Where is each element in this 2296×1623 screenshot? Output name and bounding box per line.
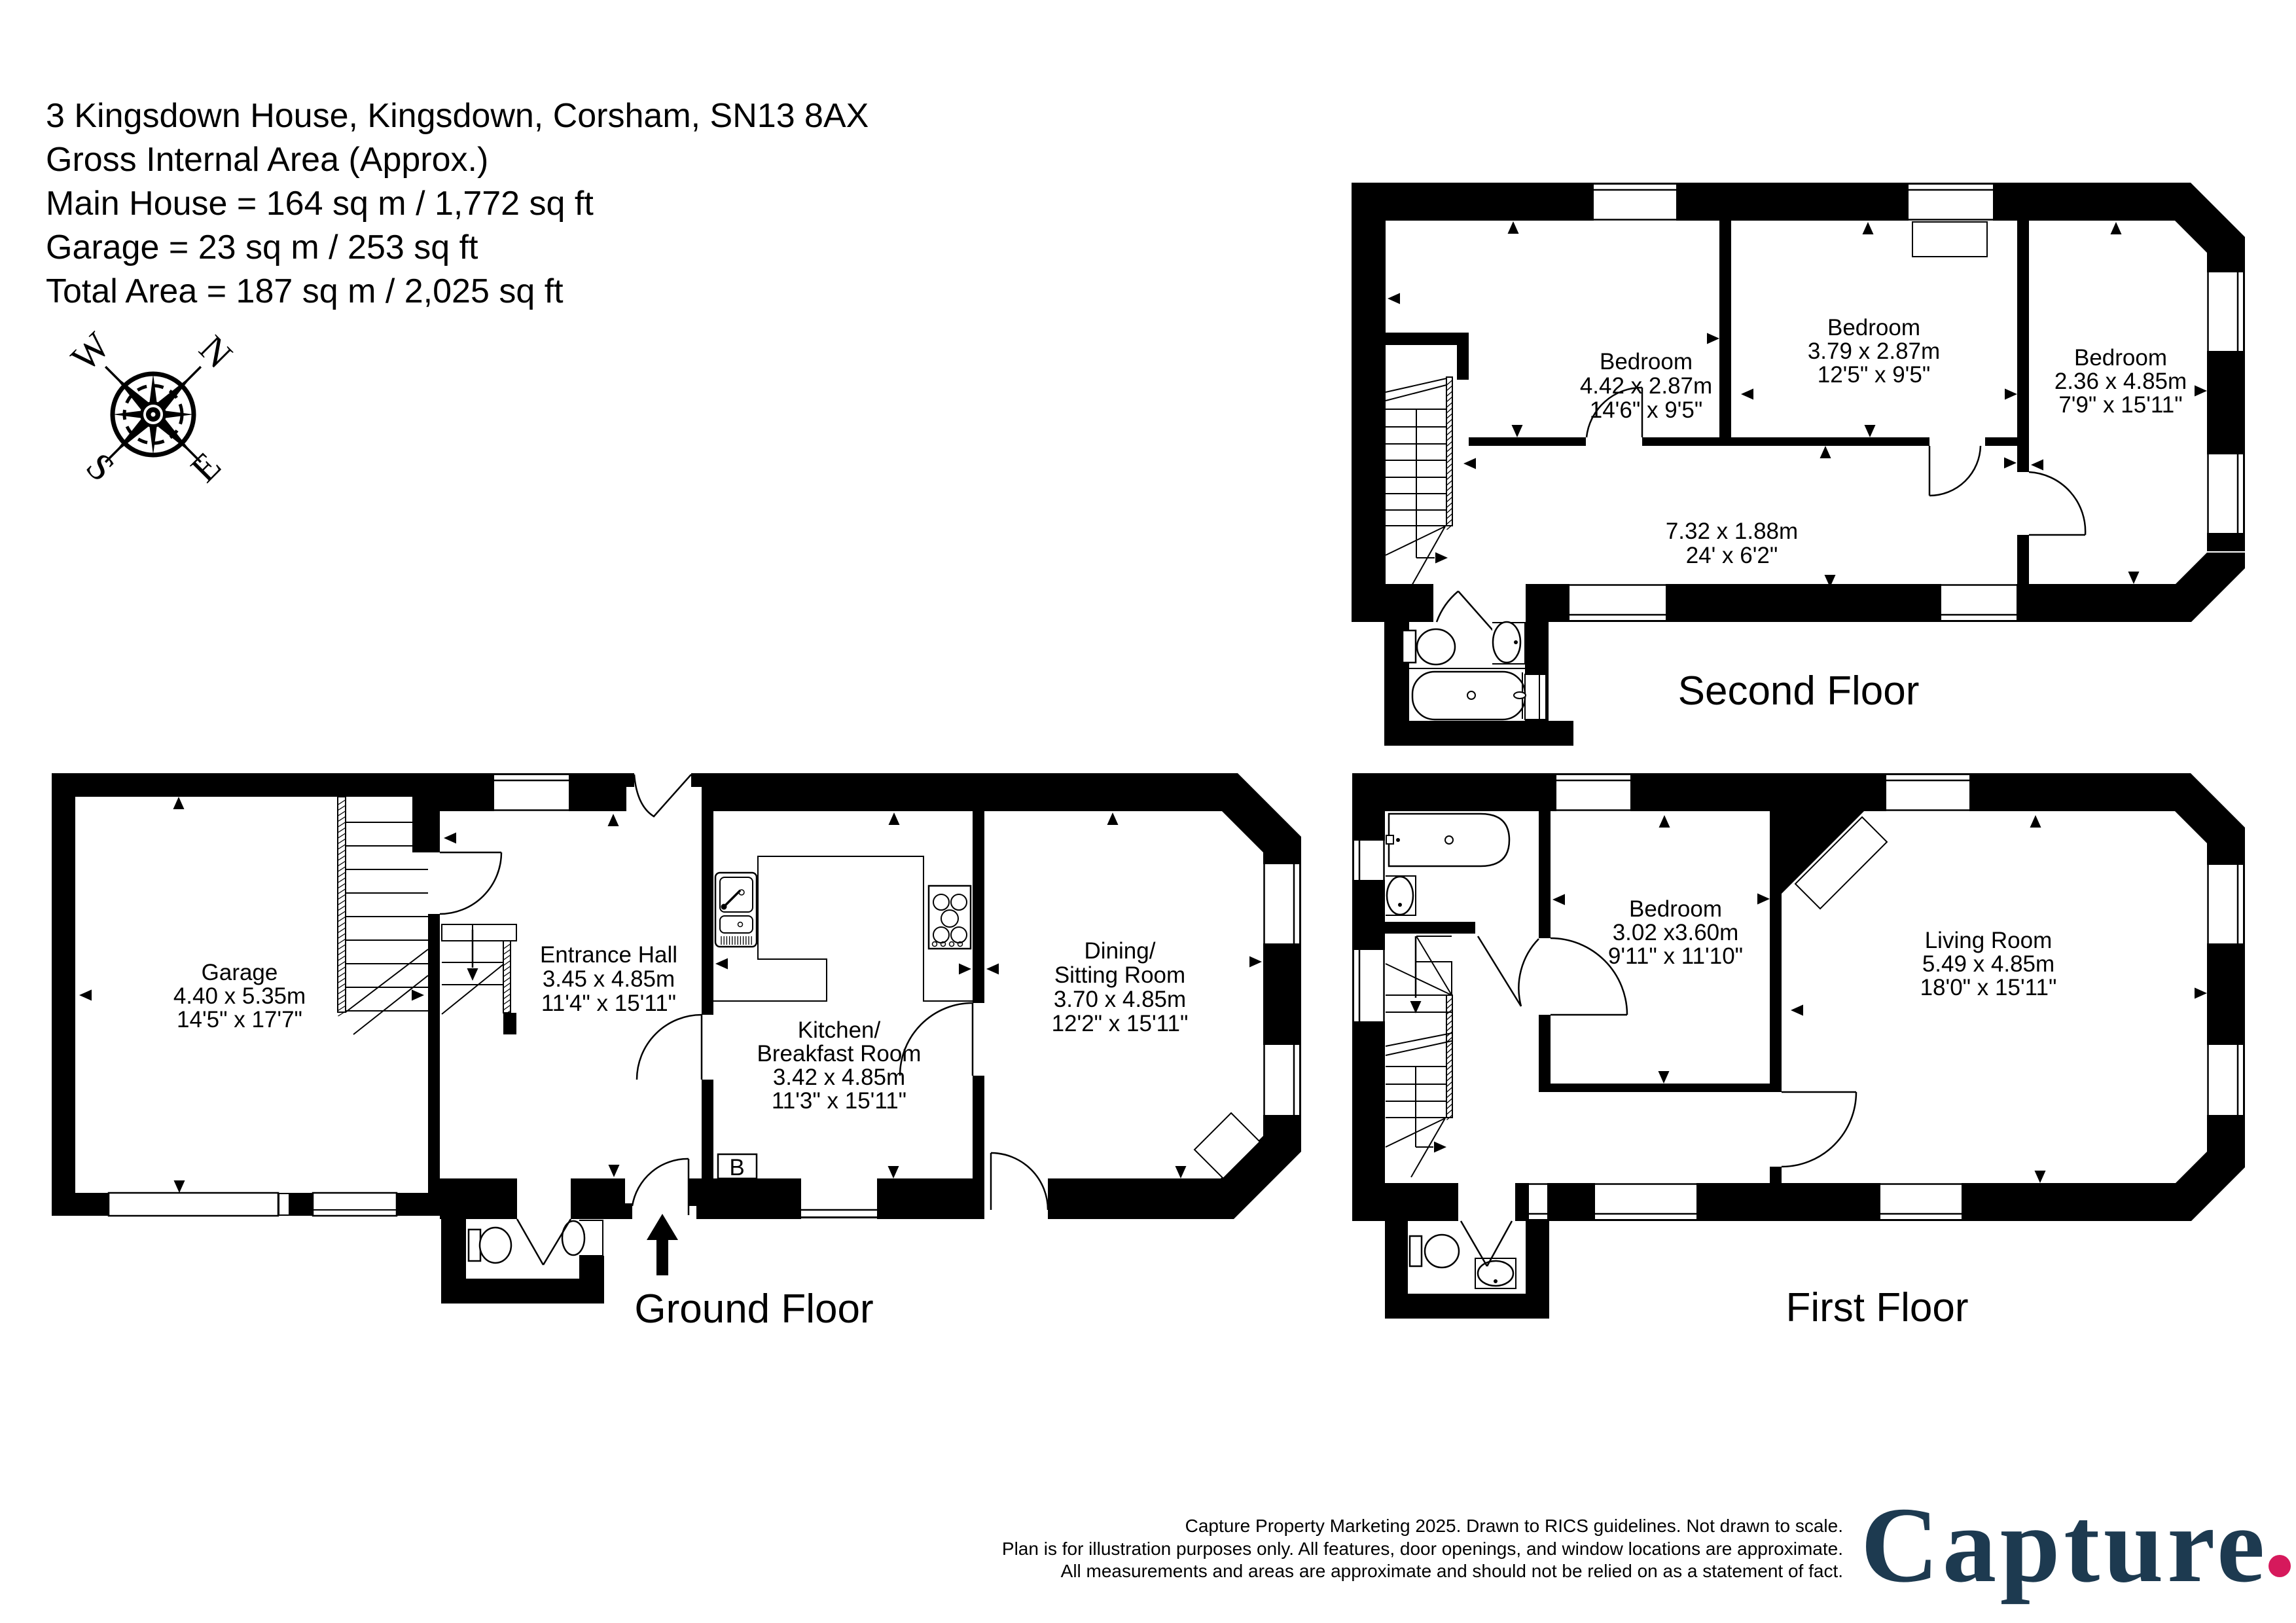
svg-text:Capture Property Marketing 202: Capture Property Marketing 2025. Drawn t… (1185, 1516, 1843, 1536)
svg-text:First Floor: First Floor (1786, 1285, 1969, 1330)
svg-text:3.79 x 2.87m: 3.79 x 2.87m (1808, 338, 1940, 364)
svg-text:3 Kingsdown House, Kingsdown,: 3 Kingsdown House, Kingsdown, Corsham, S… (46, 97, 869, 135)
svg-text:Second Floor: Second Floor (1678, 668, 1920, 714)
svg-text:Garage: Garage (202, 960, 278, 985)
svg-text:Bedroom: Bedroom (1629, 896, 1722, 922)
svg-text:Ground Floor: Ground Floor (634, 1286, 873, 1332)
svg-text:3.45 x 4.85m: 3.45 x 4.85m (543, 966, 675, 992)
svg-text:Bedroom: Bedroom (1600, 349, 1693, 374)
svg-text:12'2" x 15'11": 12'2" x 15'11" (1052, 1011, 1189, 1036)
svg-text:Breakfast Room: Breakfast Room (757, 1041, 922, 1067)
svg-text:7.32 x 1.88m: 7.32 x 1.88m (1666, 519, 1798, 544)
svg-text:All measurements and areas are: All measurements and areas are approxima… (1061, 1561, 1843, 1581)
svg-text:5.49 x 4.85m: 5.49 x 4.85m (1922, 951, 2054, 977)
svg-text:Kitchen/: Kitchen/ (798, 1017, 881, 1043)
svg-text:12'5" x 9'5": 12'5" x 9'5" (1818, 362, 1931, 388)
svg-text:9'11" x 11'10": 9'11" x 11'10" (1608, 943, 1743, 969)
svg-text:14'6" x 9'5": 14'6" x 9'5" (1590, 397, 1703, 423)
svg-text:Sitting Room: Sitting Room (1054, 962, 1185, 988)
svg-text:Bedroom: Bedroom (2074, 345, 2167, 371)
svg-text:2.36 x 4.85m: 2.36 x 4.85m (2054, 369, 2187, 394)
svg-text:B: B (729, 1155, 744, 1180)
svg-text:Gross Internal Area (Approx.): Gross Internal Area (Approx.) (46, 141, 488, 179)
svg-text:Main House = 164 sq m / 1,772: Main House = 164 sq m / 1,772 sq ft (46, 185, 594, 223)
svg-text:Total Area = 187 sq m / 2,025: Total Area = 187 sq m / 2,025 sq ft (46, 272, 564, 310)
svg-text:Bedroom: Bedroom (1827, 315, 1920, 340)
svg-text:Entrance Hall: Entrance Hall (540, 942, 677, 968)
svg-text:14'5" x 17'7": 14'5" x 17'7" (177, 1007, 302, 1032)
svg-text:11'3" x 15'11": 11'3" x 15'11" (772, 1088, 906, 1114)
svg-text:4.42 x 2.87m: 4.42 x 2.87m (1580, 373, 1712, 399)
svg-text:11'4" x 15'11": 11'4" x 15'11" (541, 991, 676, 1016)
svg-text:Living Room: Living Room (1925, 928, 2053, 953)
svg-text:7'9" x 15'11": 7'9" x 15'11" (2058, 392, 2182, 418)
svg-text:3.70 x 4.85m: 3.70 x 4.85m (1054, 987, 1186, 1012)
svg-text:18'0" x 15'11": 18'0" x 15'11" (1920, 975, 2057, 1000)
svg-text:3.42 x 4.85m: 3.42 x 4.85m (773, 1065, 905, 1090)
svg-text:4.40 x 5.35m: 4.40 x 5.35m (173, 983, 306, 1009)
svg-text:Capture: Capture (1861, 1485, 2269, 1605)
svg-text:Plan is for illustration purpo: Plan is for illustration purposes only. … (1002, 1539, 1843, 1559)
svg-text:Garage = 23 sq m / 253 sq ft: Garage = 23 sq m / 253 sq ft (46, 228, 478, 266)
svg-text:24' x 6'2": 24' x 6'2" (1686, 543, 1778, 568)
svg-text:3.02 x3.60m: 3.02 x3.60m (1613, 920, 1739, 945)
svg-text:Dining/: Dining/ (1085, 938, 1156, 964)
